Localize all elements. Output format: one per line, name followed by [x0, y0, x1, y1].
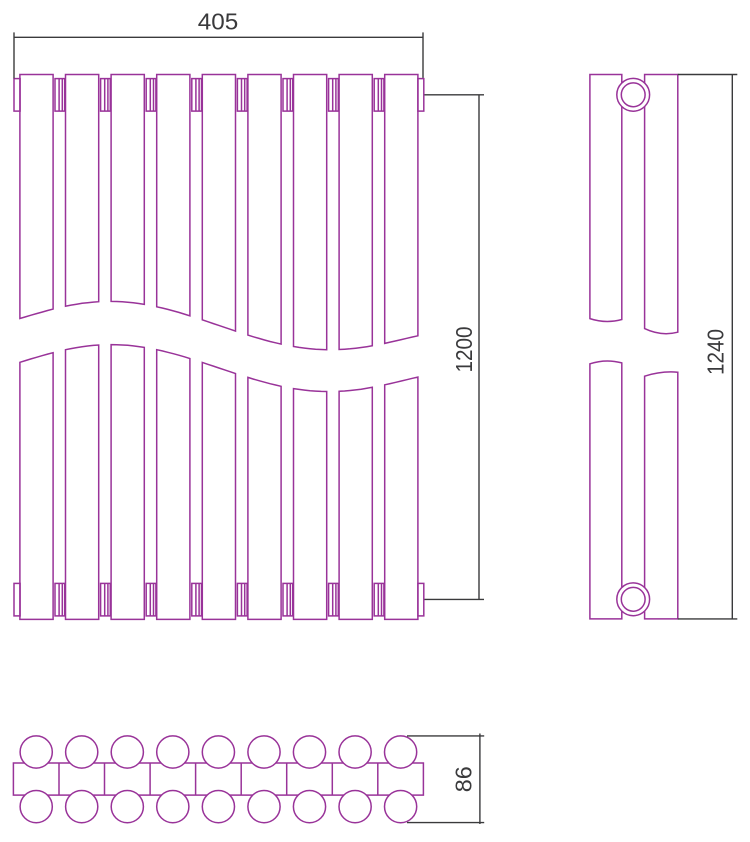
svg-text:405: 405 [198, 9, 239, 35]
svg-text:1200: 1200 [451, 327, 477, 373]
svg-text:1240: 1240 [703, 329, 729, 375]
svg-text:86: 86 [450, 766, 476, 792]
